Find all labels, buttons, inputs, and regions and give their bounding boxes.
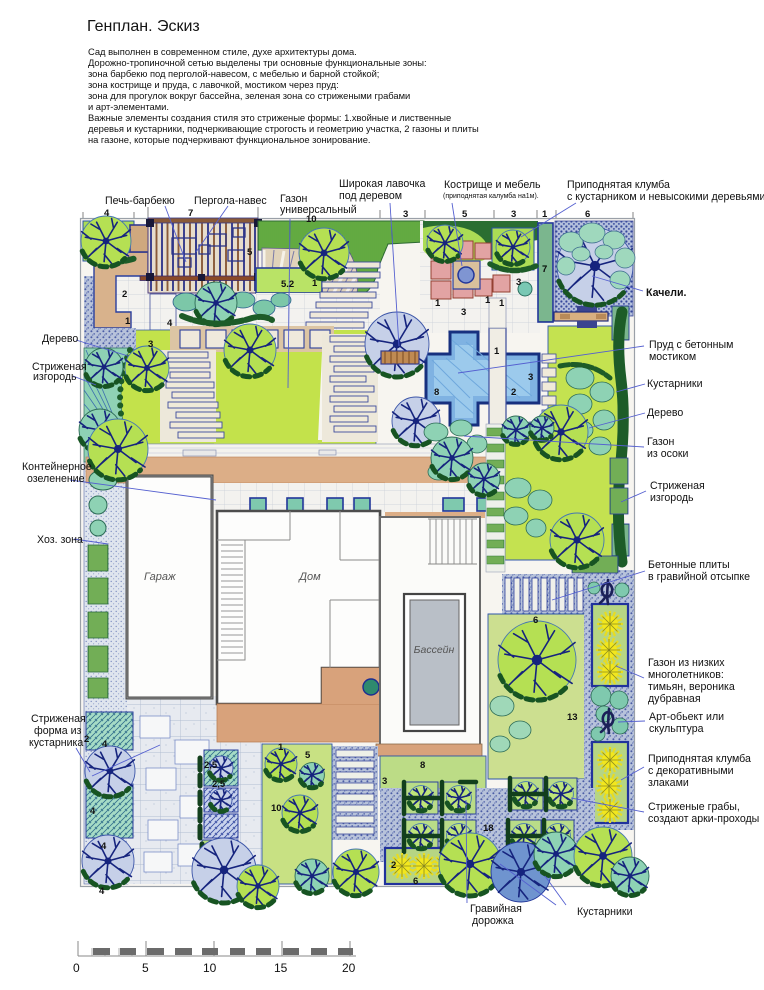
svg-text:5: 5 — [462, 209, 468, 220]
svg-text:6: 6 — [533, 615, 538, 626]
svg-text:3: 3 — [148, 339, 153, 350]
svg-text:Стриженые грабы,: Стриженые грабы, — [648, 801, 740, 813]
svg-text:2,5: 2,5 — [212, 779, 226, 790]
svg-text:3: 3 — [382, 776, 387, 787]
svg-text:3: 3 — [461, 307, 466, 318]
svg-text:(приподнятая калумба на1м).: (приподнятая калумба на1м). — [443, 192, 539, 200]
svg-text:Дорожно-тропиночной сетью выде: Дорожно-тропиночной сетью выделены три о… — [88, 57, 427, 68]
svg-text:7: 7 — [542, 264, 547, 275]
svg-text:злаками: злаками — [648, 777, 689, 789]
svg-text:универсальный: универсальный — [280, 204, 357, 216]
svg-text:Дом: Дом — [297, 571, 321, 583]
svg-text:под деревом: под деревом — [339, 190, 402, 202]
svg-text:дорожка: дорожка — [472, 915, 514, 927]
svg-text:6: 6 — [413, 876, 418, 887]
svg-text:10: 10 — [306, 214, 317, 225]
svg-text:2: 2 — [511, 387, 516, 398]
svg-text:15: 15 — [274, 961, 288, 975]
svg-text:и арт-элементами.: и арт-элементами. — [88, 101, 169, 112]
svg-text:1: 1 — [499, 298, 505, 309]
svg-text:4: 4 — [99, 886, 105, 897]
svg-text:Дерево: Дерево — [647, 407, 683, 419]
svg-text:0: 0 — [73, 961, 80, 975]
svg-text:2,5: 2,5 — [204, 760, 218, 771]
svg-text:1: 1 — [435, 298, 441, 309]
svg-text:18: 18 — [483, 823, 494, 834]
svg-text:5: 5 — [305, 750, 311, 761]
svg-text:с декоративными: с декоративными — [648, 765, 734, 777]
svg-text:3: 3 — [511, 209, 516, 220]
svg-text:5: 5 — [142, 961, 149, 975]
svg-text:Стриженая: Стриженая — [31, 713, 86, 725]
svg-text:Сад выполнен в современном сти: Сад выполнен в современном стиле, духе а… — [88, 46, 357, 57]
svg-text:5.2: 5.2 — [281, 279, 294, 290]
svg-text:создают арки-проходы: создают арки-проходы — [648, 813, 759, 825]
svg-text:Гравийная: Гравийная — [470, 903, 522, 915]
svg-text:многолетников:: многолетников: — [648, 669, 724, 681]
svg-text:Стриженая: Стриженая — [650, 480, 705, 492]
svg-text:2: 2 — [391, 860, 396, 871]
svg-text:с кустарником и невысокими дер: с кустарником и невысокими деревьями — [567, 191, 764, 203]
svg-text:13: 13 — [567, 712, 578, 723]
svg-text:зона барбекю под перголой-наве: зона барбекю под перголой-навесом, с меб… — [88, 68, 379, 79]
svg-text:4: 4 — [104, 208, 110, 219]
svg-text:10: 10 — [203, 961, 217, 975]
svg-text:Бетонные плиты: Бетонные плиты — [648, 559, 730, 571]
svg-text:Хоз. зона: Хоз. зона — [37, 534, 83, 546]
svg-text:форма из: форма из — [34, 725, 82, 737]
svg-text:в гравийной отсыпке: в гравийной отсыпке — [648, 571, 750, 583]
svg-text:Пергола-навес: Пергола-навес — [194, 195, 267, 207]
svg-text:изгородь: изгородь — [33, 371, 77, 383]
svg-text:3: 3 — [403, 209, 408, 220]
svg-text:5: 5 — [247, 247, 253, 258]
svg-text:Кострище и мебель: Кострище и мебель — [444, 179, 541, 191]
svg-text:Приподнятая клумба: Приподнятая клумба — [648, 753, 751, 765]
svg-text:Арт-обьект или: Арт-обьект или — [649, 711, 724, 723]
svg-text:1: 1 — [312, 278, 318, 289]
svg-text:кустарника: кустарника — [29, 737, 83, 749]
svg-text:озеленение: озеленение — [27, 473, 85, 485]
svg-text:Генплан. Эскиз: Генплан. Эскиз — [87, 18, 200, 35]
svg-text:зона для прогулок вокруг бассе: зона для прогулок вокруг бассейна, зелен… — [88, 90, 410, 101]
svg-text:2: 2 — [84, 734, 89, 745]
svg-text:1: 1 — [485, 295, 491, 306]
svg-text:4: 4 — [167, 318, 173, 329]
svg-text:изгородь: изгородь — [650, 492, 694, 504]
svg-text:3: 3 — [516, 277, 521, 288]
svg-text:20: 20 — [342, 961, 356, 975]
svg-text:4: 4 — [101, 841, 107, 852]
svg-text:4: 4 — [90, 806, 96, 817]
svg-text:1: 1 — [542, 209, 548, 220]
svg-text:дубравная: дубравная — [648, 693, 701, 705]
svg-text:Качели.: Качели. — [646, 287, 687, 299]
svg-text:Важные элементы создания стиля: Важные элементы создания стиля это стриж… — [88, 112, 451, 123]
svg-text:6: 6 — [585, 209, 590, 220]
svg-text:1: 1 — [125, 316, 131, 327]
svg-text:Пруд с бетонным: Пруд с бетонным — [649, 339, 733, 351]
svg-text:Кустарники: Кустарники — [577, 906, 633, 918]
svg-text:7: 7 — [188, 208, 193, 219]
svg-text:8: 8 — [420, 760, 425, 771]
svg-text:на газоне, которые подчеркиваю: на газоне, которые подчеркивают функцион… — [88, 134, 370, 145]
svg-text:Гараж: Гараж — [144, 571, 176, 583]
svg-text:мостиком: мостиком — [649, 351, 696, 363]
svg-text:Приподнятая клумба: Приподнятая клумба — [567, 179, 670, 191]
svg-text:скульптура: скульптура — [649, 723, 704, 735]
svg-text:зона кострище и пруда, с лавоч: зона кострище и пруда, с лавочкой, мости… — [88, 79, 339, 90]
svg-text:3: 3 — [528, 372, 533, 383]
svg-text:Газон: Газон — [647, 436, 675, 448]
svg-text:2: 2 — [122, 289, 127, 300]
svg-text:Печь-барбекю: Печь-барбекю — [105, 195, 175, 207]
svg-text:Контейнерное: Контейнерное — [22, 461, 92, 473]
svg-text:деревья и кустарники, подчерки: деревья и кустарники, подчеркивающие стр… — [88, 123, 479, 134]
svg-text:10: 10 — [271, 803, 282, 814]
svg-text:Газон из низких: Газон из низких — [648, 657, 725, 669]
svg-text:1: 1 — [278, 742, 284, 753]
svg-text:Дерево: Дерево — [42, 333, 78, 345]
svg-text:Широкая лавочка: Широкая лавочка — [339, 178, 425, 190]
svg-text:4: 4 — [102, 739, 108, 750]
svg-text:Кустарники: Кустарники — [647, 378, 703, 390]
svg-text:тимьян, вероника: тимьян, вероника — [648, 681, 735, 693]
svg-text:1: 1 — [494, 346, 500, 357]
svg-text:Бассейн: Бассейн — [414, 644, 455, 656]
svg-text:из осоки: из осоки — [647, 448, 689, 460]
svg-text:8: 8 — [434, 387, 439, 398]
